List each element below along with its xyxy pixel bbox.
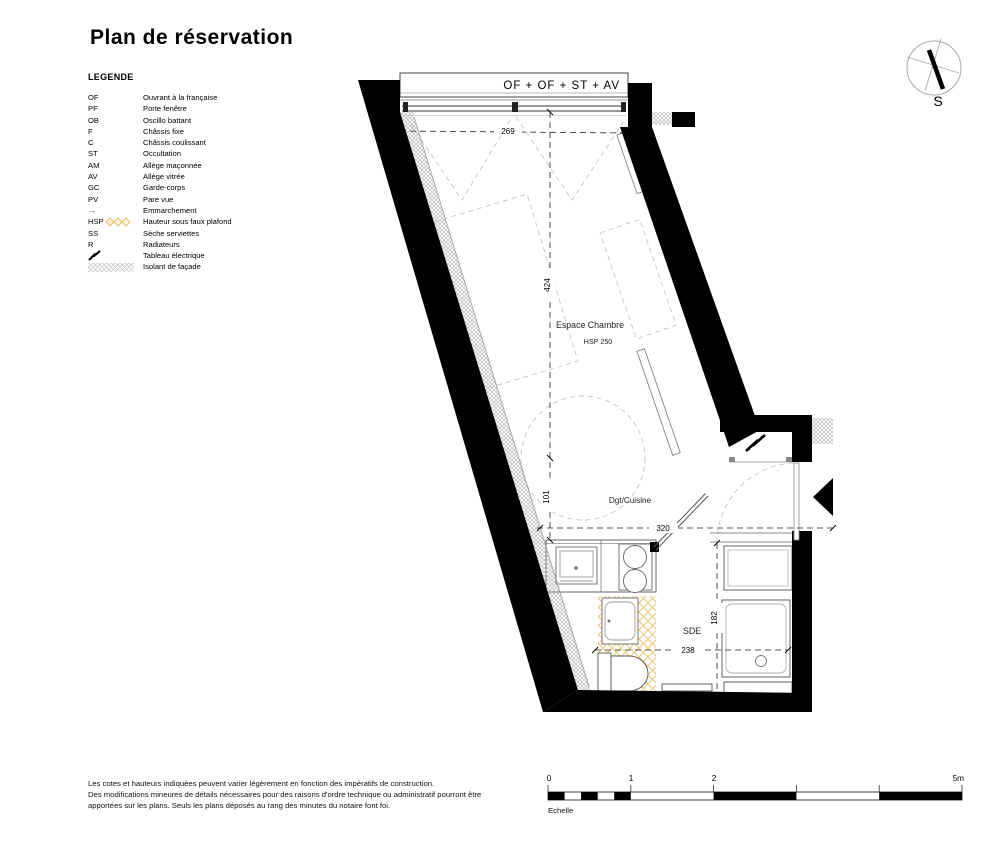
insulation-entrance (812, 418, 833, 444)
room-label-chambre: Espace Chambre (556, 320, 624, 330)
compass: S (907, 39, 961, 109)
wall-left (358, 80, 578, 712)
scale-ticks (548, 785, 962, 792)
scale-1: 1 (629, 774, 634, 783)
niche-cap-right (786, 457, 792, 462)
scale-5m: 5m (953, 774, 965, 783)
electrical-panel-icon (746, 435, 765, 451)
window-label: OF + OF + ST + AV (503, 80, 620, 92)
scale-labels: 0 1 2 5m (547, 774, 964, 783)
sde-door-leaf (654, 494, 709, 551)
wall-right-slanted (620, 127, 760, 447)
dim-424: 424 (543, 278, 552, 292)
footer-line-3: apportées sur les plans. Seuls les plans… (88, 801, 481, 812)
burner-top (624, 546, 647, 569)
wall-right-stub (628, 83, 652, 127)
kitchen-block (546, 540, 656, 593)
wall-above-door (792, 432, 812, 462)
hinge-center (512, 102, 518, 112)
dim-320: 320 (656, 524, 670, 533)
entrance (729, 435, 833, 540)
insulation-top-right (652, 112, 672, 125)
window-assembly: OF + OF + ST + AV (400, 73, 628, 116)
toilet-tank (598, 653, 611, 691)
wall-finish-line (414, 117, 589, 687)
scale-bar: 0 1 2 5m (547, 774, 964, 800)
entrance-door-swing (717, 463, 797, 543)
footer-line-1: Les cotes et hauteurs indiquées peuvent … (88, 779, 481, 790)
hinge-right (621, 102, 626, 112)
bench-top (662, 684, 712, 691)
window-leaf-swing-right (516, 117, 624, 200)
sink-basin (560, 551, 593, 577)
dim-101: 101 (542, 490, 551, 504)
sde-door (650, 494, 708, 553)
burner-bottom (624, 570, 647, 593)
plan-sheet: Plan de réservation LEGENDE OFOuvrant à … (0, 0, 1000, 857)
room-label-sde: SDE (683, 626, 701, 636)
wall-bottom (543, 690, 812, 712)
footer-line-2: Des modifications mineures de détails né… (88, 790, 481, 801)
room-note-hsp: HSP 250 (584, 337, 613, 346)
scale-caption: Echelle (548, 806, 573, 815)
footer-notes: Les cotes et hauteurs indiquées peuvent … (88, 779, 481, 811)
room-label-cuisine: Dgt/Cuisine (609, 496, 652, 505)
dim-182: 182 (710, 611, 719, 625)
floor-plan-drawing: OF + OF + ST + AV (0, 0, 1000, 857)
vanity-inner (728, 550, 788, 586)
entrance-arrow-icon (813, 478, 833, 516)
scale-0: 0 (547, 774, 552, 783)
wall-party-top (672, 112, 695, 127)
compass-south-label: S (933, 93, 942, 109)
insulation-left-wall (400, 112, 591, 690)
wall-entrance-top (720, 415, 812, 432)
hinge-left (403, 102, 408, 112)
scale-2: 2 (712, 774, 717, 783)
washbasin-tap (608, 620, 611, 623)
sink-drain (574, 566, 578, 570)
dim-238: 238 (681, 646, 695, 655)
toilet-bowl (611, 656, 648, 691)
sliding-door-leaf (637, 349, 680, 456)
niche-cap-left (729, 457, 735, 462)
shower-drain (756, 656, 767, 667)
entrance-door-leaf (794, 463, 799, 540)
wall-right-lower (792, 543, 812, 695)
dim-269: 269 (501, 127, 515, 136)
